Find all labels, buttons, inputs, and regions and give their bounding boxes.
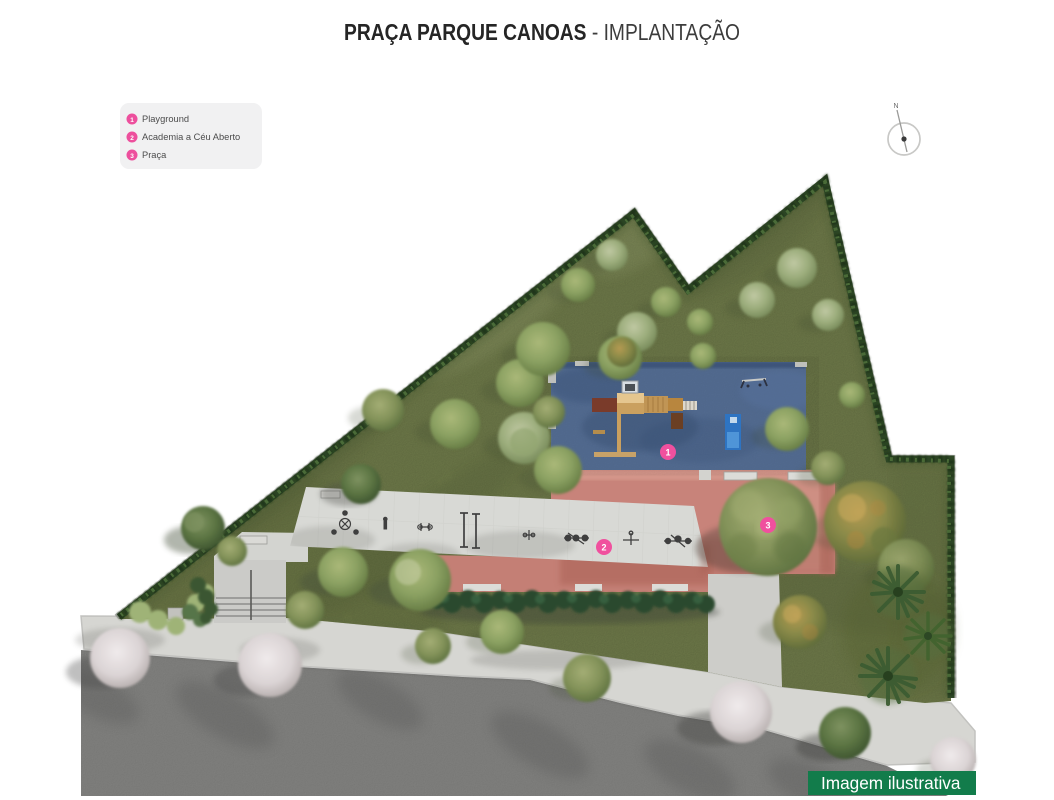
- svg-text:Praça: Praça: [142, 150, 167, 160]
- svg-text:N: N: [893, 103, 898, 110]
- svg-text:PRAÇA PARQUE CANOAS - IMPLANTA: PRAÇA PARQUE CANOAS - IMPLANTAÇÃO: [344, 19, 740, 45]
- svg-text:2: 2: [130, 135, 134, 142]
- svg-text:1: 1: [665, 448, 670, 458]
- svg-text:Imagem ilustrativa: Imagem ilustrativa: [821, 773, 961, 793]
- svg-text:3: 3: [130, 153, 134, 160]
- svg-text:3: 3: [765, 521, 770, 531]
- svg-text:Playground: Playground: [142, 114, 189, 124]
- svg-text:1: 1: [130, 117, 134, 124]
- svg-text:Academia a Céu Aberto: Academia a Céu Aberto: [142, 132, 240, 142]
- svg-text:2: 2: [601, 543, 606, 553]
